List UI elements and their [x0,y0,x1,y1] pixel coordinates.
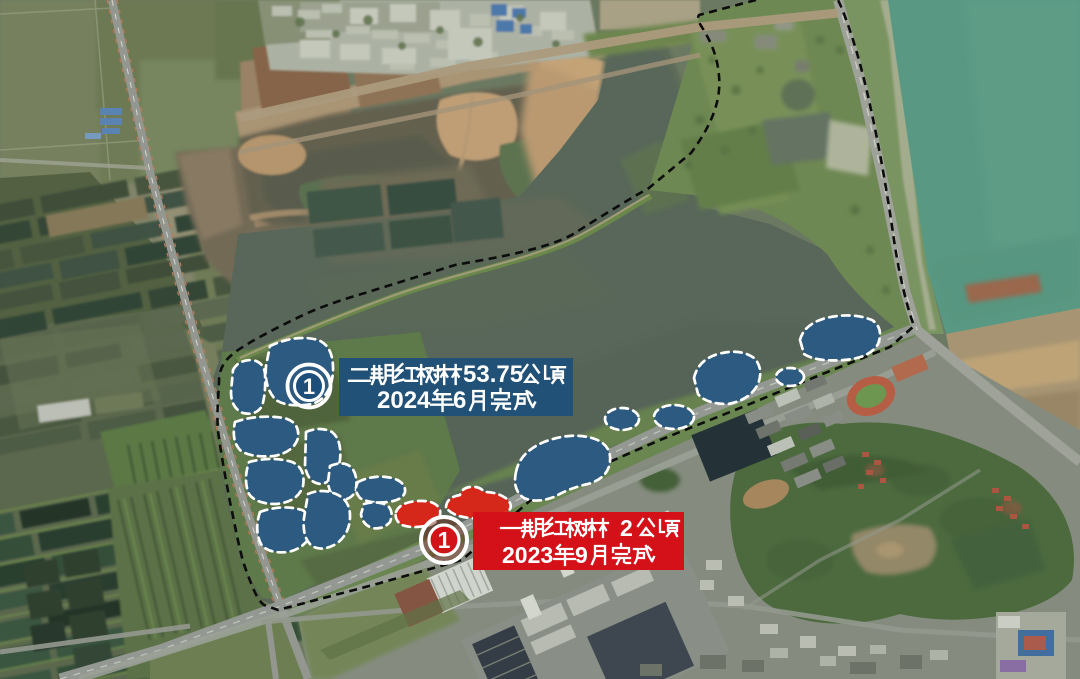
svg-text:6: 6 [453,387,466,414]
svg-text:9: 9 [575,542,588,568]
svg-text:2: 2 [620,515,633,541]
svg-text:1: 1 [303,374,315,399]
svg-text:2024: 2024 [377,387,431,414]
svg-text:1: 1 [438,527,451,553]
svg-text:53.75: 53.75 [463,361,523,388]
svg-text:2023: 2023 [502,542,553,568]
